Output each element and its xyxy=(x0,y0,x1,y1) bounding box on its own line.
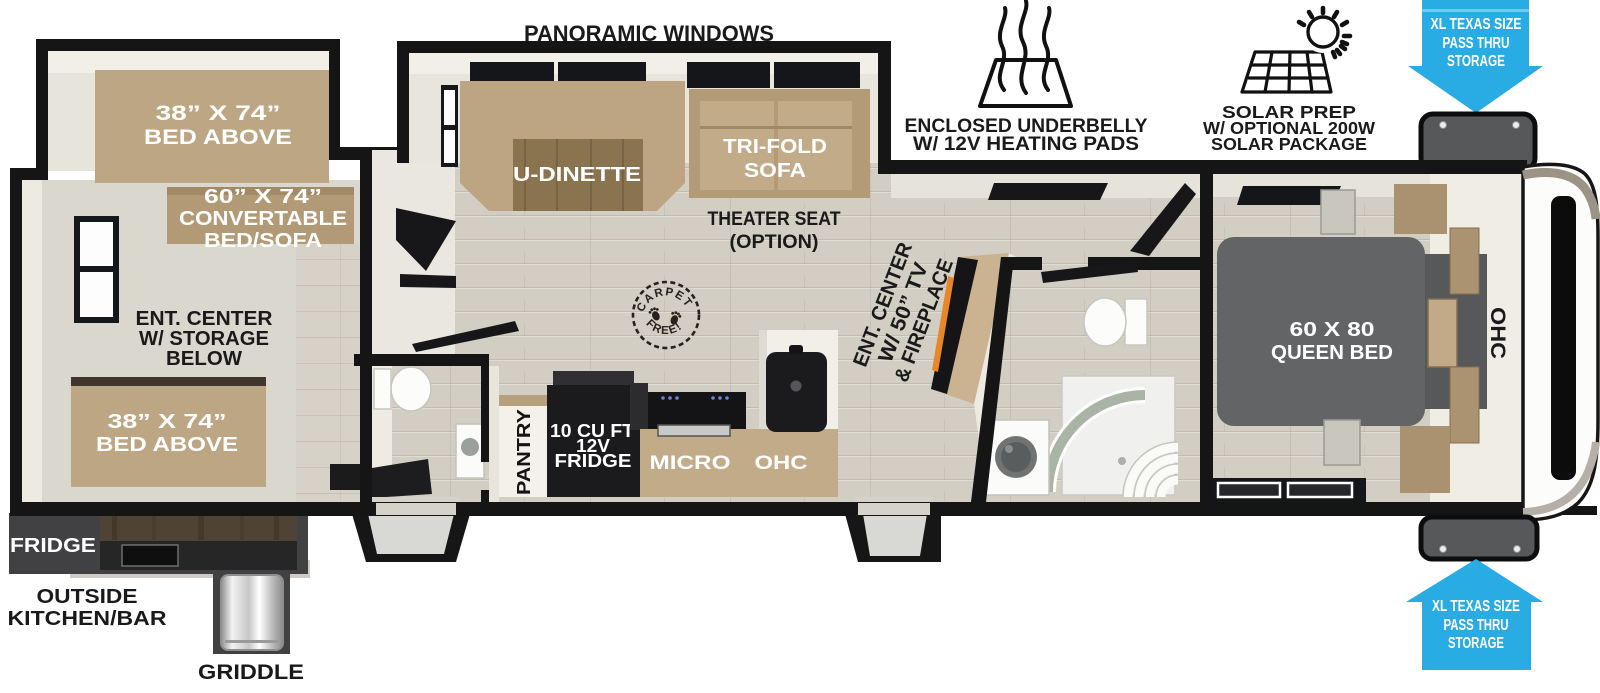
svg-text:W/ STORAGE: W/ STORAGE xyxy=(139,328,269,350)
svg-text:W/ 12V HEATING PADS: W/ 12V HEATING PADS xyxy=(913,134,1139,155)
svg-text:BELOW: BELOW xyxy=(166,348,242,370)
svg-text:GRIDDLE: GRIDDLE xyxy=(198,661,304,684)
svg-text:PASS THRU: PASS THRU xyxy=(1444,617,1509,634)
svg-text:TRI-FOLD: TRI-FOLD xyxy=(723,135,827,158)
svg-text:MICRO: MICRO xyxy=(650,453,731,474)
svg-text:38” X 74”: 38” X 74” xyxy=(108,411,227,433)
svg-text:ENT. CENTER: ENT. CENTER xyxy=(136,308,274,330)
svg-text:PASS THRU: PASS THRU xyxy=(1443,35,1510,52)
svg-text:XL TEXAS SIZE: XL TEXAS SIZE xyxy=(1431,16,1522,33)
svg-text:BED ABOVE: BED ABOVE xyxy=(144,126,292,149)
svg-text:OUTSIDE: OUTSIDE xyxy=(37,586,138,608)
svg-text:FRIDGE: FRIDGE xyxy=(10,535,96,557)
svg-text:60 X 80: 60 X 80 xyxy=(1290,319,1375,341)
svg-text:KITCHEN/BAR: KITCHEN/BAR xyxy=(8,608,168,630)
svg-text:SOLAR PACKAGE: SOLAR PACKAGE xyxy=(1211,134,1367,154)
svg-text:FRIDGE: FRIDGE xyxy=(555,451,632,471)
svg-text:OHC: OHC xyxy=(755,453,808,474)
svg-text:SOFA: SOFA xyxy=(744,159,806,182)
svg-text:CONVERTABLE: CONVERTABLE xyxy=(179,208,347,230)
svg-text:PANTRY: PANTRY xyxy=(513,408,534,495)
svg-text:QUEEN BED: QUEEN BED xyxy=(1271,342,1393,364)
svg-text:OHC: OHC xyxy=(1486,307,1509,359)
svg-text:BED/SOFA: BED/SOFA xyxy=(204,230,322,252)
svg-text:XL TEXAS SIZE: XL TEXAS SIZE xyxy=(1432,598,1520,615)
svg-text:38” X 74”: 38” X 74” xyxy=(156,102,281,125)
svg-text:(OPTION): (OPTION) xyxy=(730,232,819,253)
svg-text:STORAGE: STORAGE xyxy=(1448,635,1504,652)
svg-text:BED ABOVE: BED ABOVE xyxy=(96,434,238,456)
svg-text:60” X 74”: 60” X 74” xyxy=(204,186,322,208)
svg-text:STORAGE: STORAGE xyxy=(1447,53,1505,70)
svg-text:THEATER SEAT: THEATER SEAT xyxy=(708,209,841,230)
svg-text:U-DINETTE: U-DINETTE xyxy=(513,164,641,186)
